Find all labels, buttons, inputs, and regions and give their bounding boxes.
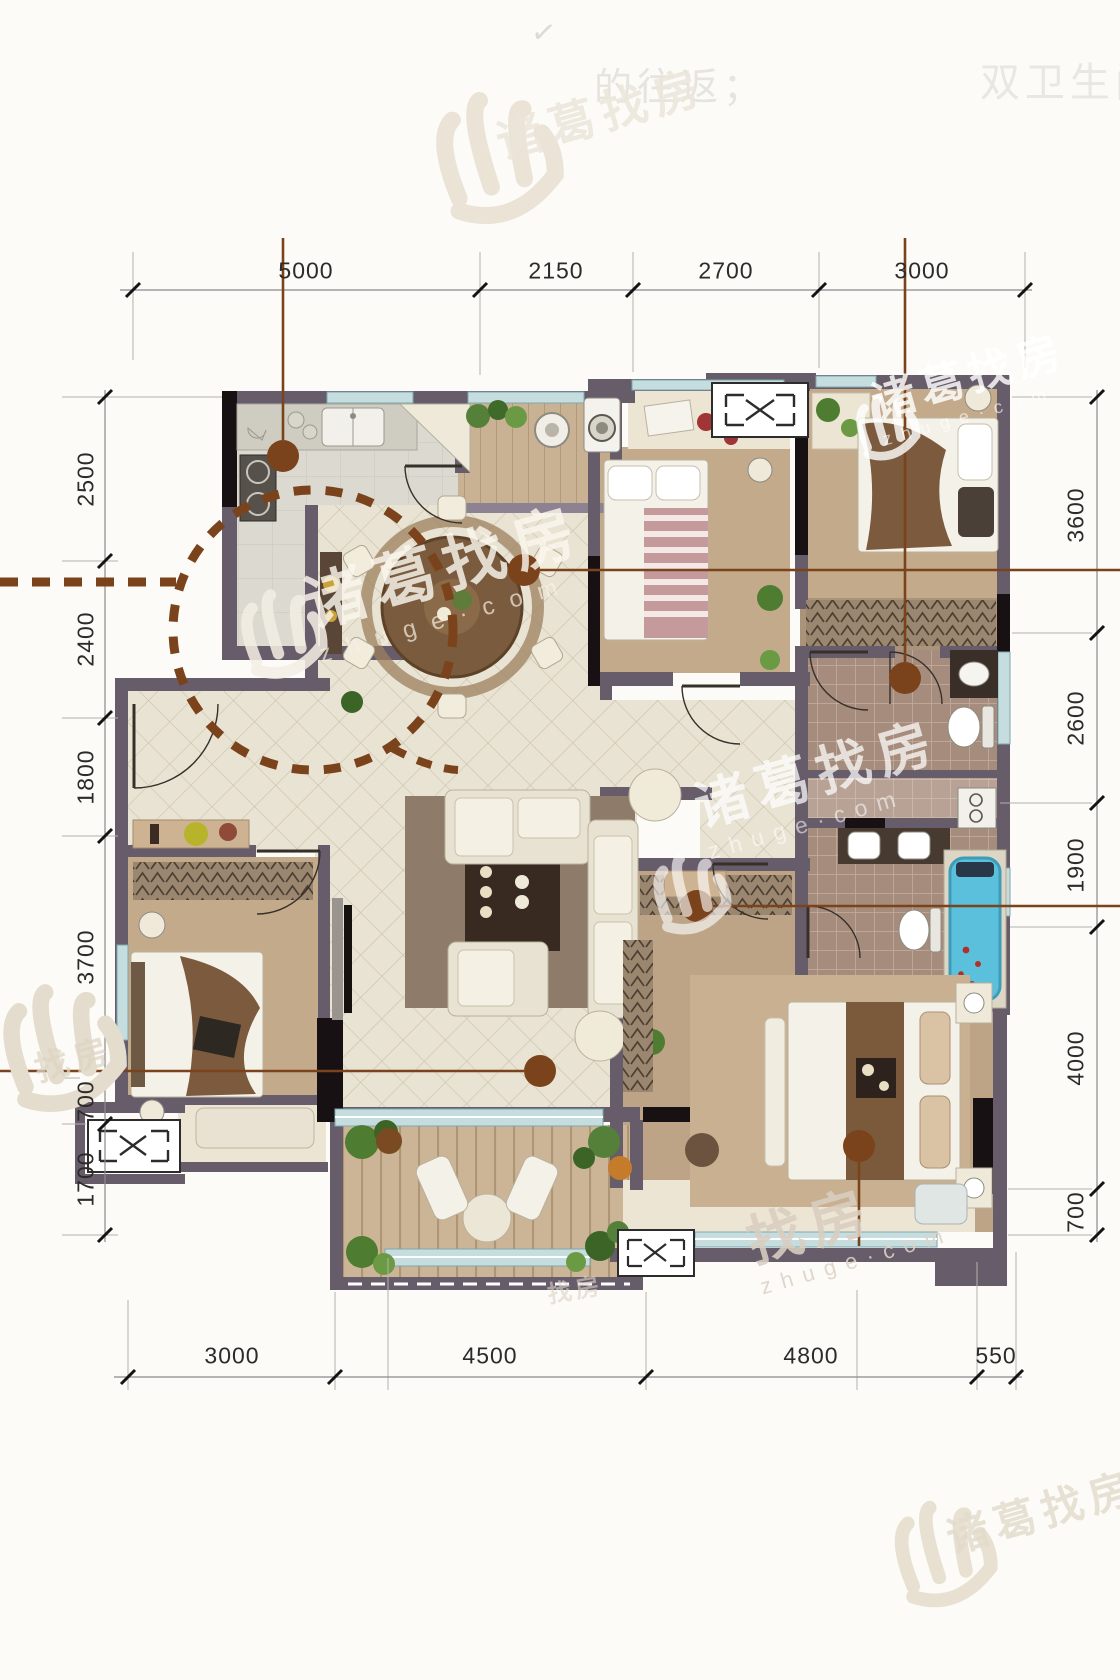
ghost-checkmark: ✓ [529, 14, 564, 53]
pouf [685, 1133, 719, 1167]
lamp-icon [139, 912, 165, 938]
balcony-table-icon [463, 1194, 511, 1242]
floor-plan-svg [0, 0, 1120, 1680]
dim-bottom-550: 550 [975, 1343, 1016, 1370]
magazines [644, 400, 694, 436]
dim-top-2700: 2700 [698, 258, 753, 285]
planter-pot [376, 1128, 402, 1154]
plant-icon [816, 398, 840, 422]
bedroom-chair [958, 487, 994, 537]
dim-top-5000: 5000 [278, 258, 333, 285]
dim-bottom-4800: 4800 [783, 1343, 838, 1370]
tv-console [332, 898, 343, 1020]
dim-left-700: 700 [73, 1080, 100, 1121]
dim-right-700: 700 [1063, 1191, 1090, 1232]
sink-icon [898, 832, 930, 859]
bottle-icon [150, 824, 159, 844]
toilet-icon [899, 908, 941, 952]
bed-bench [765, 1018, 785, 1166]
baywindow-cushion [196, 1108, 314, 1148]
dim-left-3700: 3700 [73, 929, 100, 984]
side-table-icon [629, 769, 681, 821]
ac-unit-icon [712, 383, 808, 437]
lamp-icon [748, 458, 772, 482]
dim-left-2500: 2500 [73, 451, 100, 506]
plant-icon [841, 419, 859, 437]
dim-left-1800: 1800 [73, 749, 100, 804]
dim-left-2400: 2400 [73, 611, 100, 666]
bowl-icon [184, 822, 208, 846]
bed-tray [856, 1058, 896, 1098]
dim-bottom-4500: 4500 [462, 1343, 517, 1370]
entry-console [133, 820, 249, 848]
sink-icon [848, 832, 880, 859]
plant-icon [341, 691, 363, 713]
dim-right-3600: 3600 [1063, 487, 1090, 542]
lamp-icon [964, 993, 984, 1013]
floorplan-page: 5000 2150 2700 3000 3000 4500 4800 550 2… [0, 0, 1120, 1680]
dim-right-4000: 4000 [1063, 1030, 1090, 1085]
headboard [131, 962, 145, 1087]
ghost-text-right: 双卫生间 [980, 50, 1120, 108]
dim-left-1700: 1700 [73, 1151, 100, 1206]
dim-top-2150: 2150 [528, 258, 583, 285]
dim-bottom-3000: 3000 [204, 1343, 259, 1370]
striped-duvet [644, 508, 708, 638]
toilet-icon [948, 706, 994, 748]
side-table-icon [575, 1011, 625, 1061]
sink-icon [959, 662, 989, 686]
ac-unit-icon [618, 1230, 694, 1276]
plant-icon [757, 585, 783, 611]
tv-icon [344, 905, 352, 1013]
dim-top-3000: 3000 [894, 258, 949, 285]
vase-icon [219, 823, 237, 841]
dim-right-2600: 2600 [1063, 690, 1090, 745]
plant-icon [760, 650, 780, 670]
dim-right-1900: 1900 [1063, 837, 1090, 892]
